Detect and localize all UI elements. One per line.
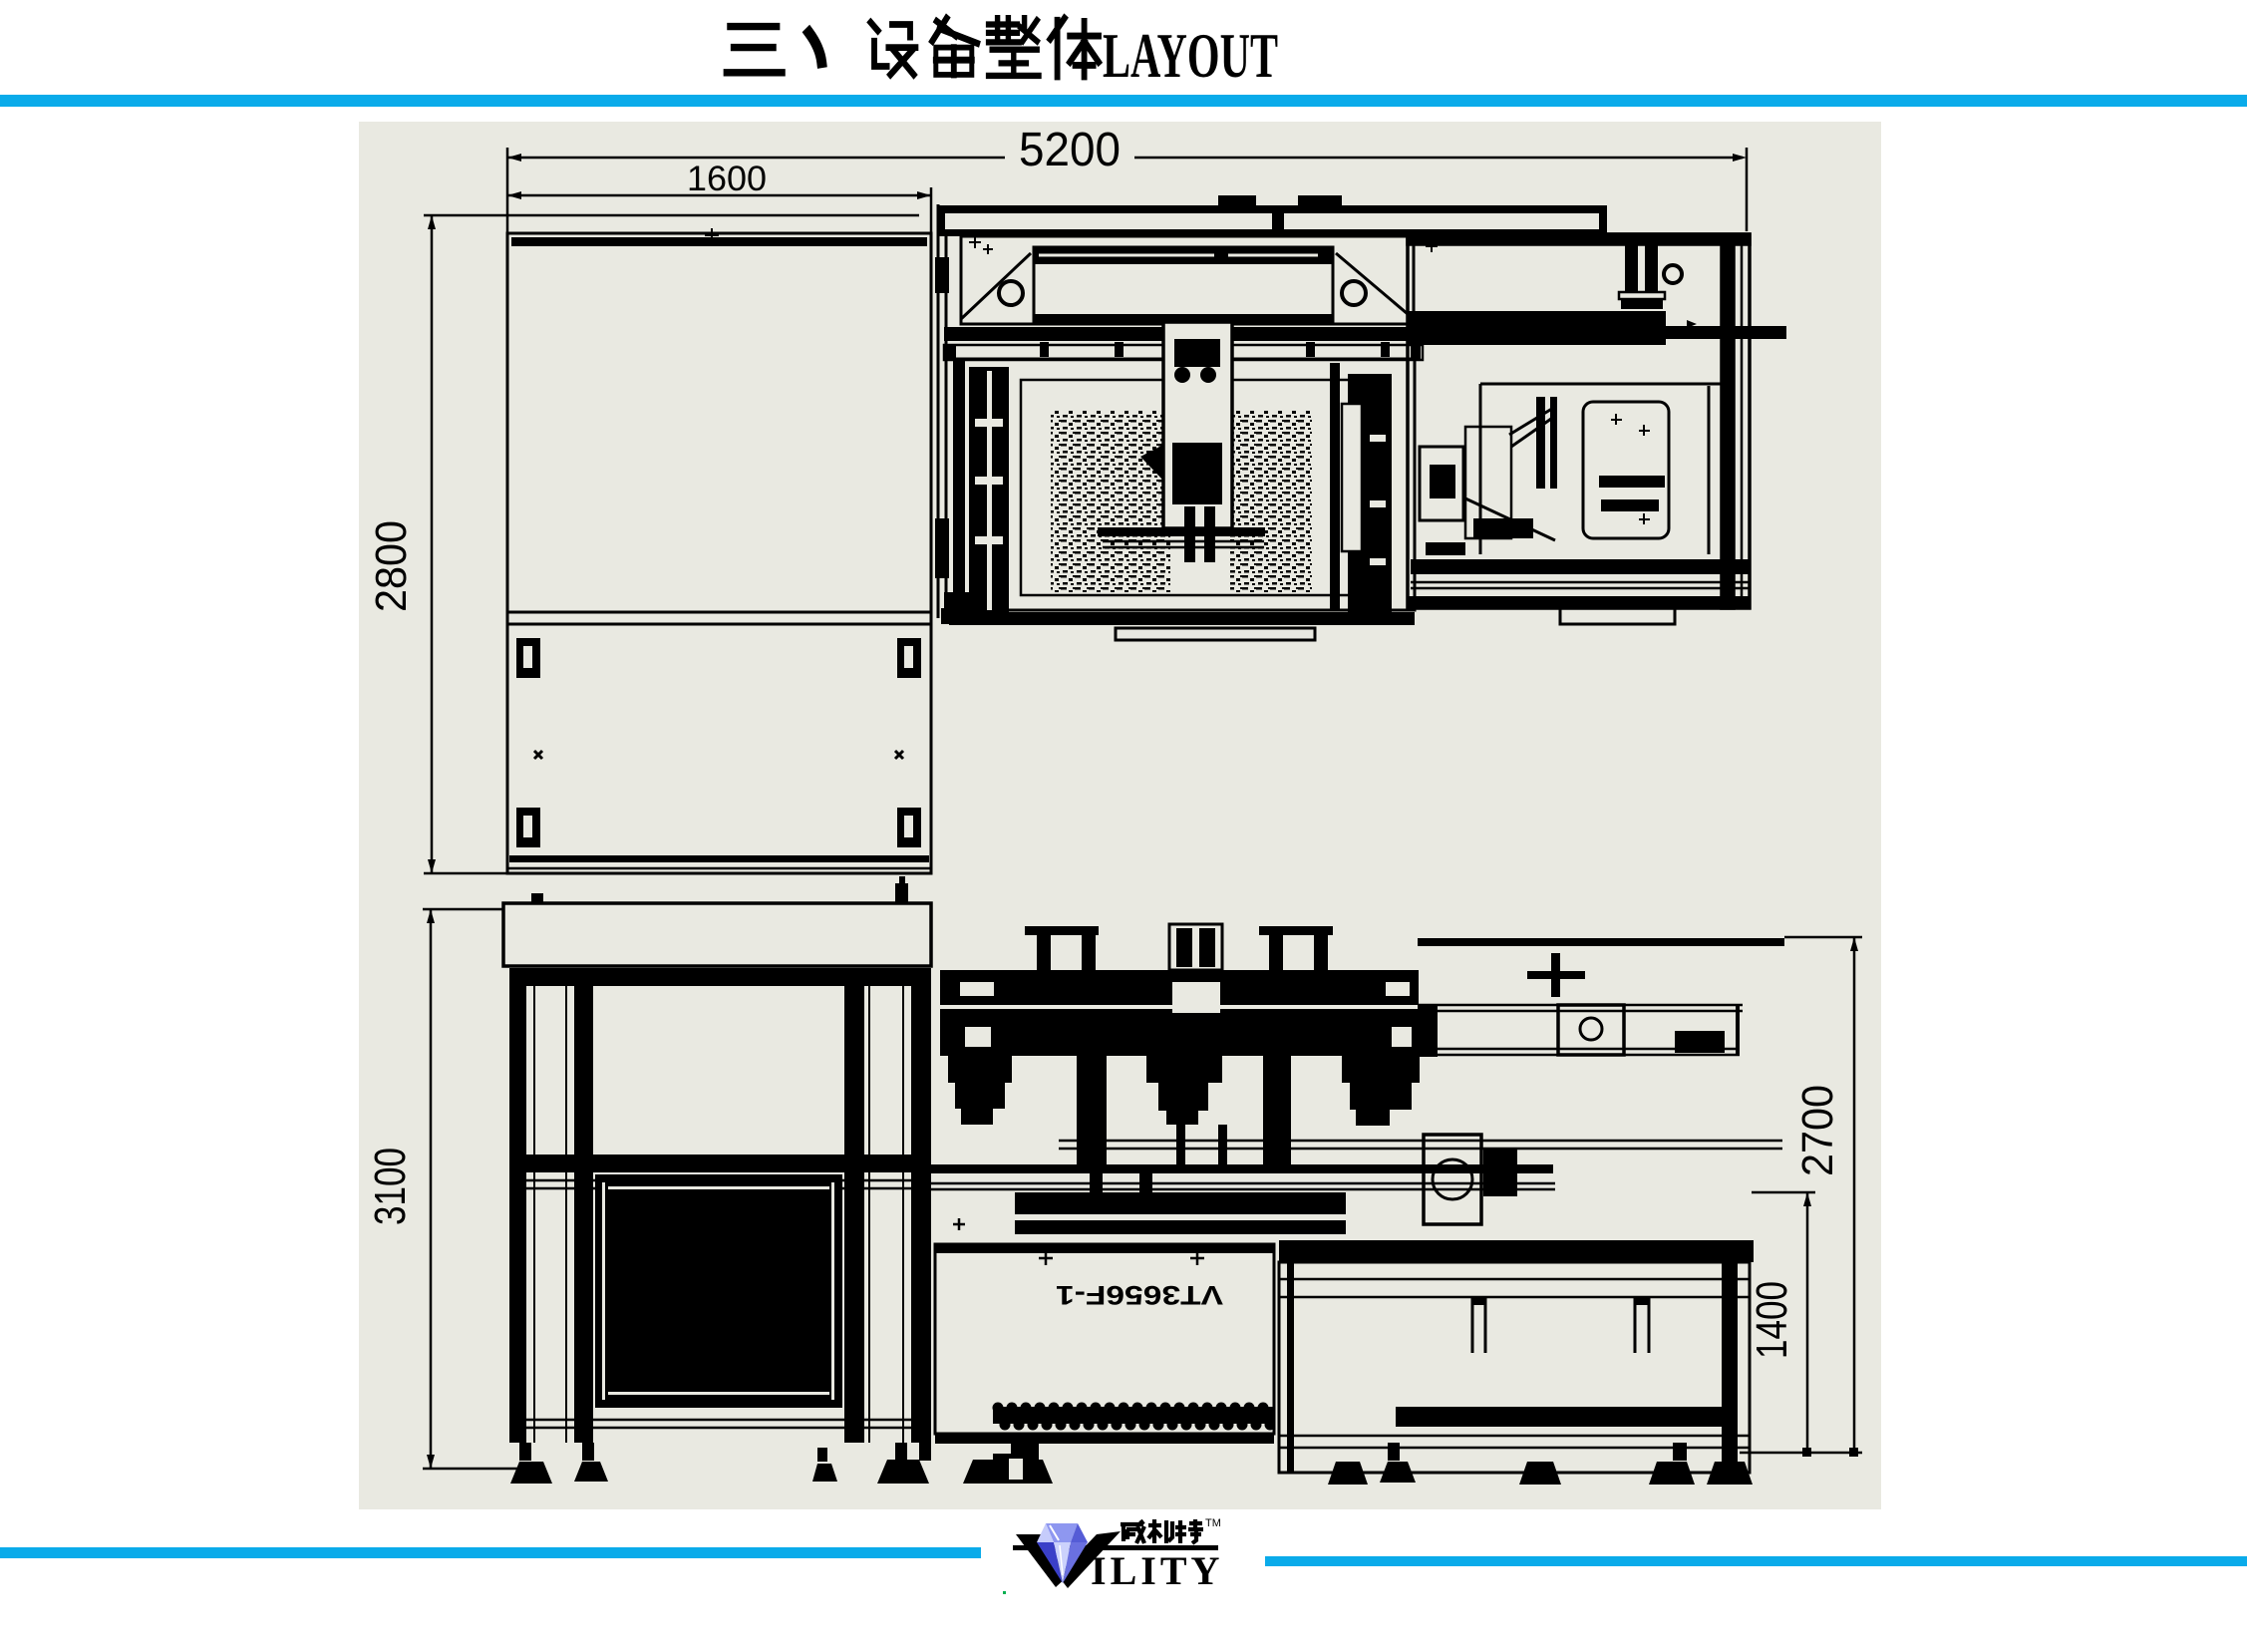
svg-text:2800: 2800 bbox=[367, 520, 416, 612]
svg-text:1600: 1600 bbox=[687, 160, 767, 198]
svg-text:TM: TM bbox=[1205, 1517, 1221, 1529]
svg-text:5200: 5200 bbox=[1019, 124, 1121, 176]
svg-text:3100: 3100 bbox=[366, 1148, 415, 1225]
svg-text:ILITY: ILITY bbox=[1091, 1548, 1223, 1593]
svg-text:2700: 2700 bbox=[1793, 1085, 1842, 1176]
svg-text:LAYOUT: LAYOUT bbox=[1103, 20, 1278, 91]
svg-text:VT3656F-1: VT3656F-1 bbox=[1056, 1280, 1223, 1310]
svg-text:1400: 1400 bbox=[1748, 1281, 1796, 1359]
